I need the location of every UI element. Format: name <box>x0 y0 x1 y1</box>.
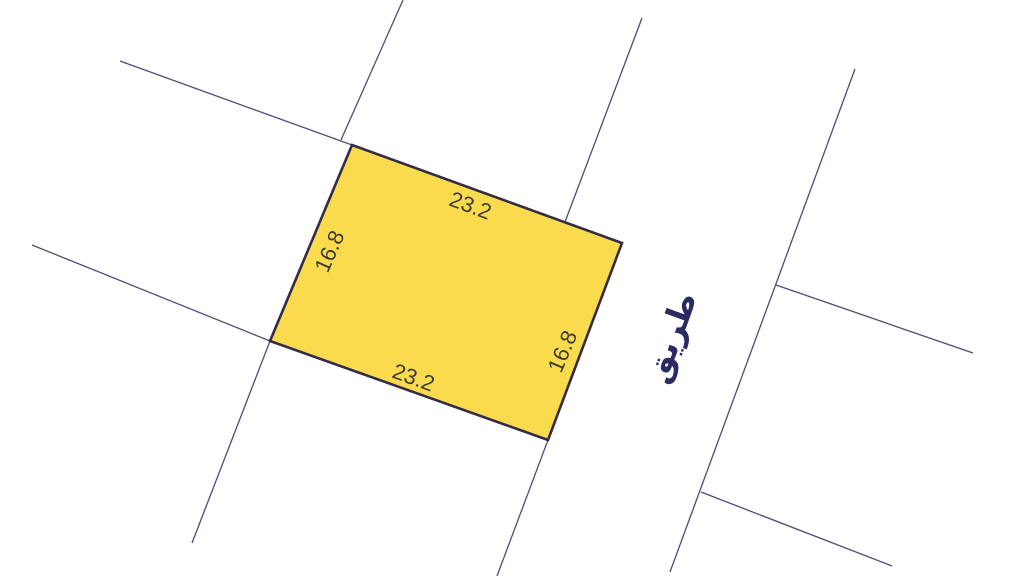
road-label: طريق <box>637 287 706 388</box>
plot-map-canvas: 23.2 16.8 23.2 16.8 طريق <box>0 0 1024 576</box>
parcel-polygon[interactable] <box>270 145 622 440</box>
cadastral-map: 23.2 16.8 23.2 16.8 طريق <box>0 0 1024 576</box>
boundary-line-northwest <box>120 61 352 145</box>
boundary-line-east-upper-branch <box>776 285 973 353</box>
boundary-line-north <box>341 0 403 140</box>
boundary-line-south-extension <box>497 440 548 576</box>
boundary-line-southwest-extension <box>192 341 270 543</box>
boundary-line-northeast <box>565 18 642 222</box>
boundary-line-west <box>32 245 270 341</box>
boundary-line-road-east <box>670 69 855 572</box>
boundary-line-east-lower-branch <box>701 492 892 566</box>
